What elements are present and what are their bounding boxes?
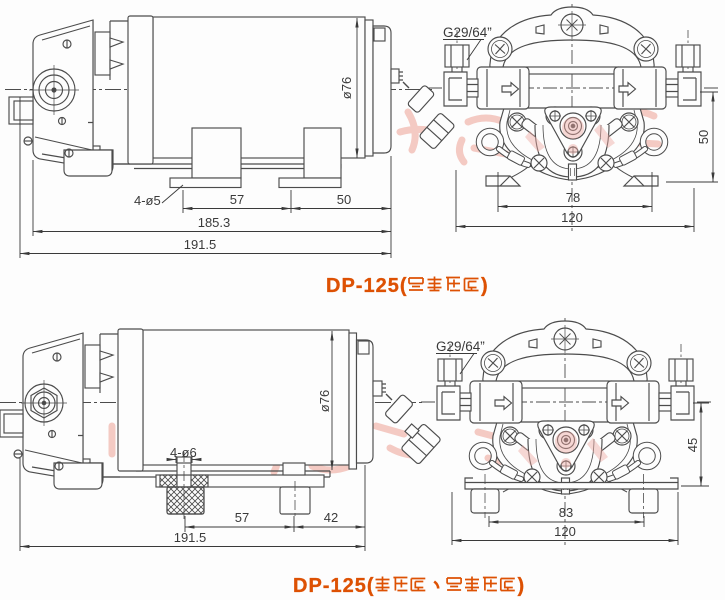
svg-text:42: 42	[324, 510, 338, 525]
svg-text:83: 83	[559, 505, 573, 520]
svg-text:DP-125(: DP-125(	[293, 575, 374, 597]
svg-text:): )	[481, 275, 488, 297]
svg-text:4-ø5: 4-ø5	[134, 193, 161, 208]
svg-text:120: 120	[561, 210, 583, 225]
svg-text:ø76: ø76	[317, 390, 332, 412]
svg-text:191.5: 191.5	[184, 237, 217, 252]
svg-text:50: 50	[337, 192, 351, 207]
svg-text:ø76: ø76	[339, 77, 354, 99]
svg-text:): )	[518, 575, 525, 597]
svg-text:57: 57	[230, 192, 244, 207]
svg-text:120: 120	[554, 524, 576, 539]
svg-text:191.5: 191.5	[174, 530, 207, 545]
svg-text:57: 57	[235, 510, 249, 525]
svg-text:4-ø6: 4-ø6	[170, 445, 197, 460]
svg-text:DP-125(: DP-125(	[326, 275, 407, 297]
svg-text:45: 45	[685, 438, 700, 452]
svg-text:G29/64”: G29/64”	[443, 25, 492, 40]
svg-text:78: 78	[566, 190, 580, 205]
svg-text:185.3: 185.3	[198, 215, 231, 230]
svg-text:50: 50	[696, 130, 711, 144]
